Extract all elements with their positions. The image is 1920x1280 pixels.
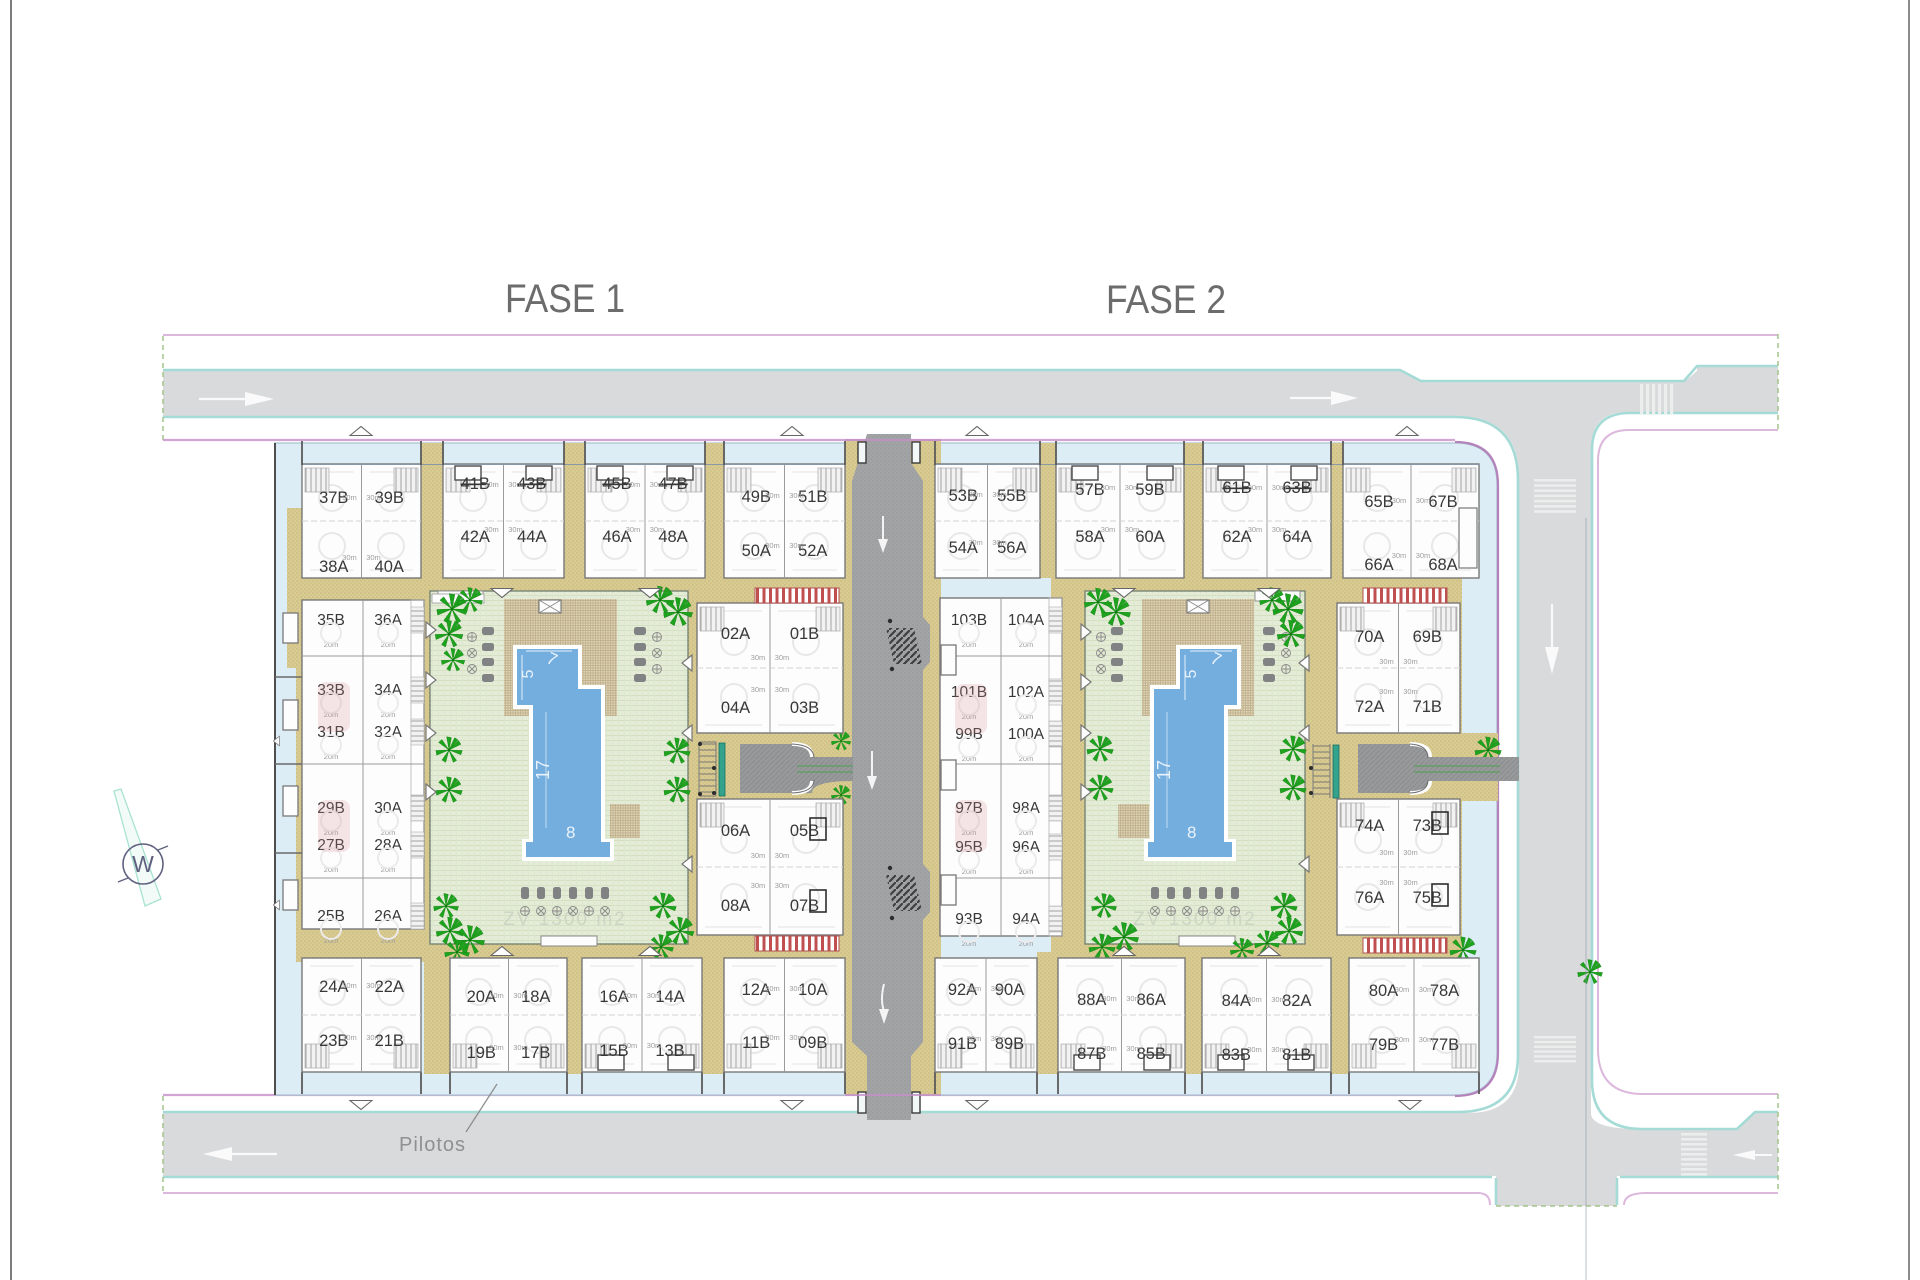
svg-text:01B: 01B <box>790 625 819 643</box>
svg-text:30m: 30m <box>775 851 790 860</box>
svg-text:85B: 85B <box>1137 1045 1166 1063</box>
svg-text:30m: 30m <box>1403 878 1418 887</box>
svg-text:74A: 74A <box>1355 817 1384 835</box>
svg-text:30m: 30m <box>765 491 780 500</box>
svg-text:30m: 30m <box>1419 1035 1434 1044</box>
svg-text:02A: 02A <box>721 625 750 643</box>
svg-text:30m: 30m <box>1392 496 1407 505</box>
svg-text:71B: 71B <box>1413 698 1442 716</box>
svg-text:66A: 66A <box>1364 556 1393 574</box>
svg-text:81B: 81B <box>1282 1046 1311 1064</box>
svg-text:96A: 96A <box>1012 839 1040 856</box>
svg-text:98A: 98A <box>1012 800 1040 817</box>
svg-text:60A: 60A <box>1135 528 1164 546</box>
svg-text:30m: 30m <box>991 984 1006 993</box>
svg-text:30m: 30m <box>967 984 982 993</box>
svg-text:103B: 103B <box>951 612 987 629</box>
svg-text:30m: 30m <box>1272 483 1287 492</box>
svg-text:30m: 30m <box>789 491 804 500</box>
svg-text:93B: 93B <box>955 911 983 928</box>
svg-text:30m: 30m <box>1247 1045 1262 1054</box>
svg-text:72A: 72A <box>1355 698 1384 716</box>
svg-text:30m: 30m <box>775 881 790 890</box>
svg-text:30m: 30m <box>1379 848 1394 857</box>
svg-text:04A: 04A <box>721 699 750 717</box>
svg-text:30m: 30m <box>1379 657 1394 666</box>
svg-text:30m: 30m <box>1419 985 1434 994</box>
svg-text:30m: 30m <box>1272 525 1287 534</box>
svg-text:30m: 30m <box>1126 994 1141 1003</box>
svg-text:30m: 30m <box>789 984 804 993</box>
svg-text:30m: 30m <box>1125 525 1140 534</box>
svg-text:30m: 30m <box>1403 687 1418 696</box>
svg-text:102A: 102A <box>1008 684 1045 701</box>
svg-text:ZV 1300 m2: ZV 1300 m2 <box>503 909 627 930</box>
svg-text:30m: 30m <box>1271 1045 1286 1054</box>
svg-text:30m: 30m <box>751 685 766 694</box>
svg-text:30m: 30m <box>751 653 766 662</box>
svg-text:30m: 30m <box>751 851 766 860</box>
svg-text:30m: 30m <box>991 1034 1006 1043</box>
svg-text:30m: 30m <box>489 991 504 1000</box>
svg-text:30m: 30m <box>1395 1035 1410 1044</box>
svg-text:34A: 34A <box>374 682 402 699</box>
svg-text:17: 17 <box>1154 760 1174 780</box>
svg-text:63B: 63B <box>1282 479 1311 497</box>
svg-text:30m: 30m <box>775 685 790 694</box>
svg-text:30m: 30m <box>623 1041 638 1050</box>
svg-text:30m: 30m <box>1416 496 1431 505</box>
svg-text:30m: 30m <box>789 1033 804 1042</box>
svg-text:30m: 30m <box>1403 848 1418 857</box>
svg-text:Pilotos: Pilotos <box>399 1134 466 1156</box>
svg-text:30m: 30m <box>366 981 381 990</box>
svg-text:30m: 30m <box>366 553 381 562</box>
svg-text:30m: 30m <box>366 493 381 502</box>
svg-text:30m: 30m <box>1125 483 1140 492</box>
svg-text:30m: 30m <box>1248 525 1263 534</box>
svg-text:30m: 30m <box>1395 985 1410 994</box>
svg-text:30A: 30A <box>374 800 402 817</box>
svg-text:68A: 68A <box>1428 556 1457 574</box>
svg-text:35B: 35B <box>317 612 345 629</box>
svg-text:70A: 70A <box>1355 628 1384 646</box>
svg-text:30m: 30m <box>489 1043 504 1052</box>
svg-text:ZV 1300 m2: ZV 1300 m2 <box>1133 909 1257 930</box>
svg-text:59B: 59B <box>1135 481 1164 499</box>
svg-text:25B: 25B <box>317 908 345 925</box>
svg-text:73B: 73B <box>1413 817 1442 835</box>
svg-text:30m: 30m <box>513 991 528 1000</box>
svg-text:05B: 05B <box>790 822 819 840</box>
svg-text:30m: 30m <box>1102 1044 1117 1053</box>
svg-text:30m: 30m <box>1271 995 1286 1004</box>
svg-text:30m: 30m <box>1102 994 1117 1003</box>
svg-text:30m: 30m <box>968 538 983 547</box>
svg-text:17: 17 <box>533 760 553 780</box>
svg-text:78A: 78A <box>1430 982 1459 1000</box>
svg-text:30m: 30m <box>1392 551 1407 560</box>
svg-text:30m: 30m <box>366 1033 381 1042</box>
svg-text:30m: 30m <box>1101 483 1116 492</box>
svg-text:08A: 08A <box>721 897 750 915</box>
svg-text:76A: 76A <box>1355 889 1384 907</box>
svg-text:FASE 2: FASE 2 <box>1106 278 1226 322</box>
svg-text:30m: 30m <box>647 1041 662 1050</box>
svg-text:30m: 30m <box>789 541 804 550</box>
svg-text:8: 8 <box>1187 823 1196 842</box>
svg-text:30m: 30m <box>650 480 665 489</box>
svg-text:75B: 75B <box>1413 889 1442 907</box>
svg-text:30m: 30m <box>765 541 780 550</box>
svg-text:30m: 30m <box>508 480 523 489</box>
svg-text:30m: 30m <box>513 1043 528 1052</box>
svg-text:30m: 30m <box>992 490 1007 499</box>
svg-text:5: 5 <box>520 669 537 678</box>
svg-text:30m: 30m <box>765 984 780 993</box>
svg-text:94A: 94A <box>1012 911 1040 928</box>
svg-text:30m: 30m <box>1248 483 1263 492</box>
svg-text:30m: 30m <box>765 1033 780 1042</box>
svg-text:100A: 100A <box>1008 726 1045 743</box>
svg-text:67B: 67B <box>1428 493 1457 511</box>
svg-text:30m: 30m <box>1416 551 1431 560</box>
svg-text:32A: 32A <box>374 724 402 741</box>
svg-text:30m: 30m <box>623 991 638 1000</box>
svg-text:86A: 86A <box>1137 991 1166 1009</box>
svg-text:30m: 30m <box>342 1033 357 1042</box>
svg-text:26A: 26A <box>374 908 402 925</box>
svg-text:30m: 30m <box>342 981 357 990</box>
svg-text:FASE 1: FASE 1 <box>505 277 625 321</box>
svg-text:30m: 30m <box>1379 878 1394 887</box>
svg-text:30m: 30m <box>484 480 499 489</box>
svg-text:82A: 82A <box>1282 992 1311 1010</box>
svg-text:30m: 30m <box>1379 687 1394 696</box>
svg-text:36A: 36A <box>374 612 402 629</box>
svg-text:69B: 69B <box>1413 628 1442 646</box>
svg-text:30m: 30m <box>967 1034 982 1043</box>
svg-text:30m: 30m <box>342 553 357 562</box>
svg-text:30m: 30m <box>1101 525 1116 534</box>
svg-text:30m: 30m <box>508 525 523 534</box>
svg-text:30m: 30m <box>751 881 766 890</box>
svg-text:03B: 03B <box>790 699 819 717</box>
svg-text:65B: 65B <box>1364 493 1393 511</box>
svg-text:30m: 30m <box>342 493 357 502</box>
svg-text:06A: 06A <box>721 822 750 840</box>
svg-text:28A: 28A <box>374 837 402 854</box>
svg-text:30m: 30m <box>647 991 662 1000</box>
svg-text:30m: 30m <box>650 525 665 534</box>
svg-text:5: 5 <box>1183 669 1200 678</box>
svg-text:30m: 30m <box>968 490 983 499</box>
svg-text:30m: 30m <box>1403 657 1418 666</box>
svg-text:30m: 30m <box>1247 995 1262 1004</box>
svg-text:77B: 77B <box>1430 1036 1459 1054</box>
svg-text:8: 8 <box>566 823 575 842</box>
svg-text:30m: 30m <box>484 525 499 534</box>
svg-text:30m: 30m <box>992 538 1007 547</box>
svg-text:30m: 30m <box>626 525 641 534</box>
svg-text:30m: 30m <box>626 480 641 489</box>
svg-text:W: W <box>132 851 154 877</box>
svg-text:64A: 64A <box>1282 528 1311 546</box>
svg-text:30m: 30m <box>775 653 790 662</box>
svg-text:104A: 104A <box>1008 612 1045 629</box>
svg-text:30m: 30m <box>1126 1044 1141 1053</box>
